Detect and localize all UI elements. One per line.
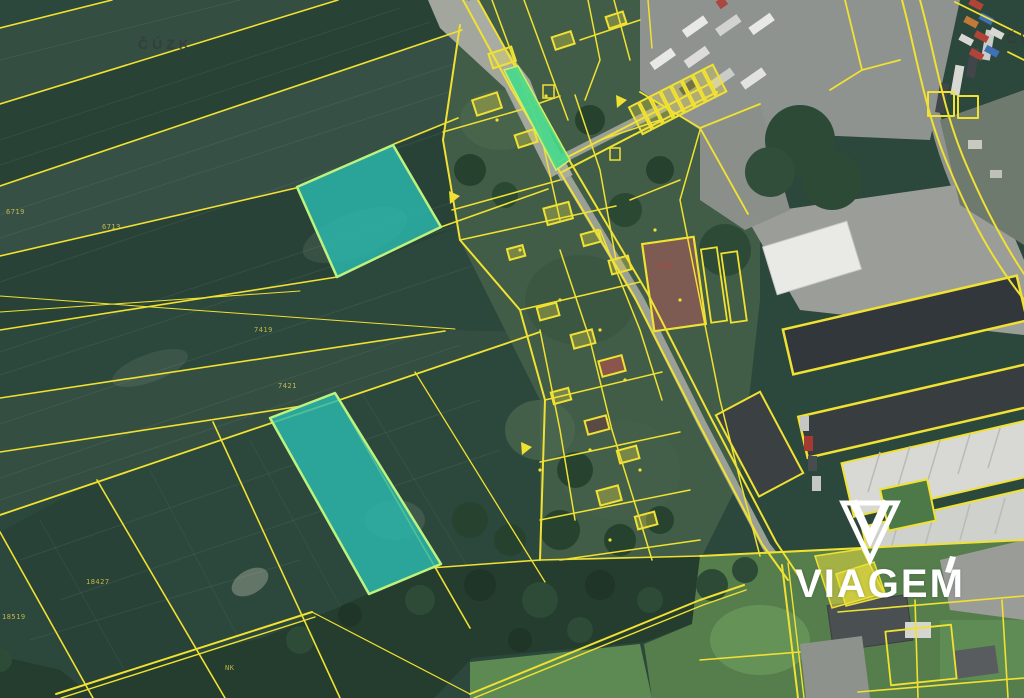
building-number-label: 614 (658, 262, 672, 270)
parcel-number-label: NK (225, 664, 234, 672)
parcel-number-label: 6713 (102, 223, 121, 231)
parcel-number-label: 18519 (2, 613, 26, 621)
cadastral-map-canvas[interactable]: ČÚZK ČÚZK 6719 6713 7419 7421 18427 1851… (0, 0, 1024, 698)
cuzk-watermark: ČÚZK (138, 36, 193, 52)
parcel-number-label: 18427 (86, 578, 110, 586)
cuzk-watermark-right: ČÚZK (1006, 30, 1024, 46)
parcel-number-label: 6719 (6, 208, 25, 216)
parcel-number-label: 7421 (278, 382, 297, 390)
parcel-number-label: 7419 (254, 326, 273, 334)
viagem-logo-text: VIAGEM (788, 562, 972, 607)
